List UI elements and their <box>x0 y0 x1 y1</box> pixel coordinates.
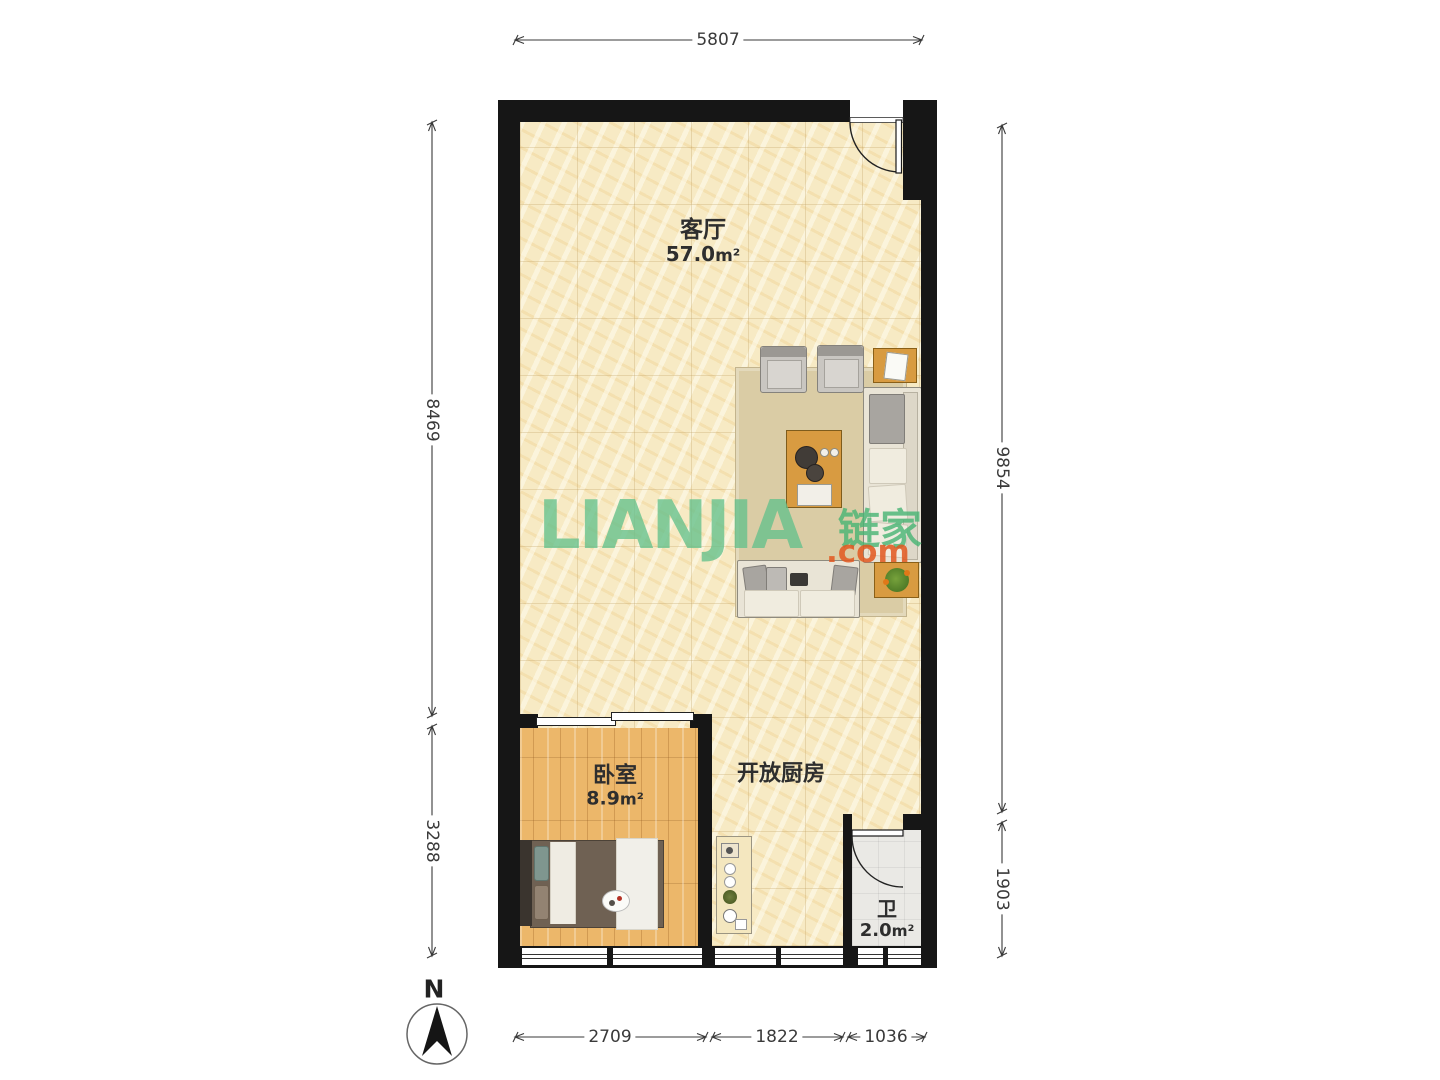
armchair-backrest <box>818 346 863 356</box>
dimension-line <box>919 35 924 45</box>
area-unit: m² <box>620 790 644 809</box>
plant-table <box>874 562 919 598</box>
window-mullion <box>498 946 522 968</box>
dimension-line <box>846 1032 851 1042</box>
dimension-line <box>916 1034 925 1041</box>
coffee-table <box>786 430 842 508</box>
dimension-label-bottom-middle: 1822 <box>751 1027 802 1047</box>
tray-dot <box>617 896 622 901</box>
dimension-line <box>997 123 1007 128</box>
window-mullion <box>843 946 858 968</box>
dimension-line <box>513 35 518 45</box>
floor-plan-canvas: 客厅 57.0m² 卧室 8.9m² 开放厨房 卫 2.0m² 5807 270… <box>0 0 1440 1080</box>
dimension-line <box>427 120 437 125</box>
dimension-label-top: 5807 <box>692 30 743 50</box>
armchair-backrest <box>761 347 806 357</box>
window-mullion <box>776 946 781 968</box>
dimension-line <box>840 1032 845 1042</box>
dimension-line <box>997 809 1007 814</box>
room-name: 卫 <box>860 898 915 921</box>
dimension-line <box>697 1034 706 1041</box>
dimension-line <box>997 820 1007 825</box>
bathroom-label: 卫 2.0m² <box>860 898 915 942</box>
dimension-line <box>834 1034 843 1041</box>
dimension-line <box>710 1032 715 1042</box>
north-label: N <box>424 975 445 1004</box>
side-table <box>873 348 917 383</box>
kitchen-label: 开放厨房 <box>737 761 825 786</box>
dimension-line <box>999 125 1006 134</box>
counter-box <box>735 919 747 930</box>
bed-blanket <box>616 838 658 930</box>
wall-top <box>498 100 850 122</box>
bed-pillow <box>534 885 549 920</box>
breakfast-tray <box>602 890 630 912</box>
sofa-cushion <box>744 590 799 617</box>
bedroom-sliding-panel <box>536 717 616 726</box>
north-needle-icon <box>422 1006 452 1056</box>
sofa-remote <box>790 573 808 586</box>
dimension-line <box>427 713 437 718</box>
plant-fruit <box>904 570 910 576</box>
armchair-seat <box>767 360 802 389</box>
bedroom-sliding-panel <box>611 712 694 721</box>
dimension-label-bottom-left: 2709 <box>584 1027 635 1047</box>
room-name: 开放厨房 <box>737 761 825 786</box>
bed-headboard <box>518 840 532 926</box>
dimension-label-left-upper: 8469 <box>422 394 442 445</box>
dimension-line <box>515 1034 524 1041</box>
dimension-line <box>848 1034 857 1041</box>
room-name: 客厅 <box>666 217 741 243</box>
armchair <box>760 346 807 393</box>
sofa-bottom <box>737 560 860 618</box>
counter-plant <box>723 890 737 904</box>
bed <box>518 838 664 928</box>
wall-bathroom-left <box>843 814 852 946</box>
dimension-line <box>997 953 1007 958</box>
dimension-label-bottom-right: 1036 <box>860 1027 911 1047</box>
dimension-line <box>427 724 437 729</box>
bedroom-label: 卧室 8.9m² <box>586 763 644 810</box>
compass-circle <box>407 1004 467 1064</box>
bed-sheet <box>550 842 576 924</box>
dimension-label-left-lower: 3288 <box>422 815 442 866</box>
small-cup <box>830 448 839 457</box>
area-value: 2.0 <box>860 920 892 941</box>
window-mullion <box>607 946 613 968</box>
area-value: 57.0 <box>666 242 715 266</box>
dimension-line <box>429 122 436 131</box>
wall-bedroom-right <box>698 714 712 946</box>
room-area: 8.9m² <box>586 789 644 811</box>
area-unit: m² <box>892 922 915 940</box>
wall-top-right <box>903 100 937 122</box>
plant-fruit <box>883 579 889 585</box>
dimension-label-right-upper: 9854 <box>992 442 1012 493</box>
sink-bowl <box>724 863 736 875</box>
room-name: 卧室 <box>586 763 644 788</box>
burner <box>726 847 733 854</box>
sofa-cushion <box>868 484 908 523</box>
wall-left <box>498 100 520 968</box>
kitchen-counter <box>716 836 752 934</box>
room-area: 57.0m² <box>666 243 741 267</box>
armchair <box>817 345 864 393</box>
sofa-cushion <box>868 521 909 558</box>
dimension-line <box>515 37 524 44</box>
armchair-seat <box>824 359 859 388</box>
dimension-line <box>922 1032 927 1042</box>
dimension-line <box>427 953 437 958</box>
window-band-bottom <box>498 946 937 968</box>
dimension-line <box>999 947 1006 956</box>
tray-dot <box>609 900 615 906</box>
area-unit: m² <box>715 246 740 266</box>
dimension-line <box>703 1032 708 1042</box>
dimension-line <box>513 1032 518 1042</box>
room-area: 2.0m² <box>860 921 915 942</box>
dimension-line <box>999 803 1006 812</box>
teacup <box>806 464 824 482</box>
sofa-right <box>863 387 922 563</box>
papers <box>883 352 908 381</box>
dimension-line <box>429 947 436 956</box>
tray <box>797 484 832 506</box>
window-mullion <box>883 946 888 968</box>
wall-right <box>921 122 937 968</box>
dimension-line <box>913 37 922 44</box>
dimension-line <box>712 1034 721 1041</box>
area-value: 8.9 <box>586 788 620 810</box>
dimension-line <box>999 822 1006 831</box>
wall-corner-column <box>903 122 921 200</box>
wall-bathroom-top-right <box>903 814 921 830</box>
cooktop <box>721 843 739 858</box>
sofa-cushion <box>800 590 855 617</box>
dimension-line <box>429 726 436 735</box>
bed-pillow <box>534 846 549 881</box>
small-cup <box>820 448 829 457</box>
sofa-throw-blanket <box>869 394 905 444</box>
sink-bowl <box>724 876 736 888</box>
sofa-cushion <box>869 448 907 484</box>
window-mullion <box>921 946 937 968</box>
dimension-label-right-lower: 1903 <box>992 863 1012 914</box>
window-mullion <box>702 946 715 968</box>
dimension-line <box>429 707 436 716</box>
living-room-label: 客厅 57.0m² <box>666 217 741 267</box>
